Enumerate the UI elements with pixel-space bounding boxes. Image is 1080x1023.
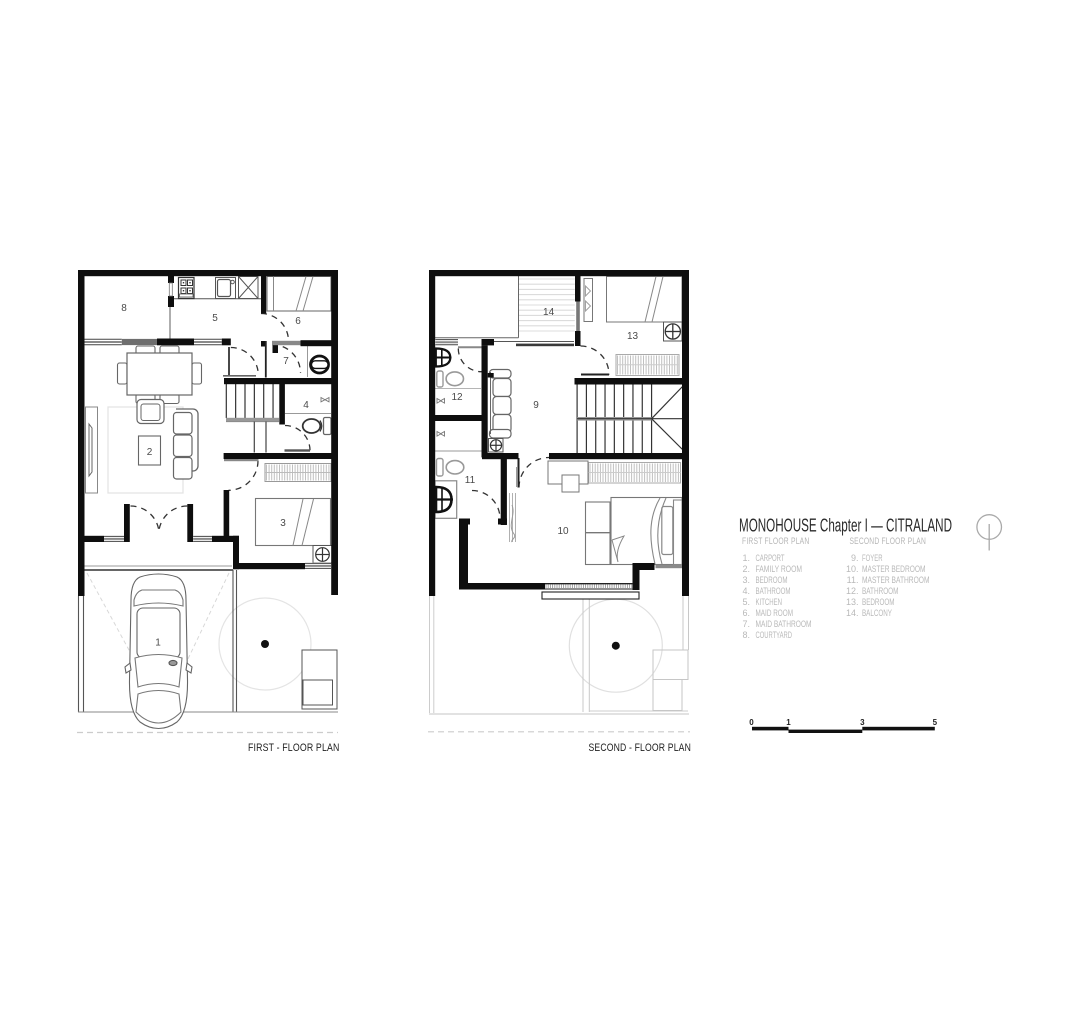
svg-text:11: 11 <box>465 475 476 486</box>
svg-text:6.: 6. <box>742 608 750 618</box>
svg-text:12: 12 <box>451 392 463 403</box>
svg-text:2.: 2. <box>742 564 750 574</box>
svg-text:8.: 8. <box>742 630 750 640</box>
svg-text:4.: 4. <box>742 586 750 596</box>
svg-text:MASTER BATHROOM: MASTER BATHROOM <box>862 575 930 585</box>
svg-text:5: 5 <box>212 313 218 324</box>
svg-text:3: 3 <box>280 518 286 529</box>
svg-text:COURTYARD: COURTYARD <box>756 630 793 640</box>
svg-text:9: 9 <box>533 400 539 411</box>
svg-text:MONOHOUSE Chapter I — CITRALAN: MONOHOUSE Chapter I — CITRALAND <box>739 516 952 536</box>
svg-text:5.: 5. <box>742 597 750 607</box>
svg-text:10: 10 <box>557 526 569 537</box>
svg-text:BEDROOM: BEDROOM <box>862 597 895 607</box>
svg-text:FAMILY ROOM: FAMILY ROOM <box>756 564 803 574</box>
svg-text:3.: 3. <box>742 575 750 585</box>
svg-text:MASTER BEDROOM: MASTER BEDROOM <box>862 564 926 574</box>
svg-text:10.: 10. <box>846 564 859 574</box>
svg-text:5: 5 <box>933 718 938 727</box>
svg-text:KITCHEN: KITCHEN <box>756 597 783 607</box>
svg-text:7: 7 <box>283 356 289 367</box>
svg-text:9.: 9. <box>851 553 859 563</box>
svg-text:13.: 13. <box>846 597 859 607</box>
svg-text:MAID ROOM: MAID ROOM <box>756 608 794 618</box>
svg-text:4: 4 <box>303 400 309 411</box>
svg-text:2: 2 <box>147 447 153 458</box>
svg-text:7.: 7. <box>742 619 750 629</box>
svg-text:3: 3 <box>860 718 865 727</box>
svg-text:MAID BATHROOM: MAID BATHROOM <box>756 619 812 629</box>
svg-text:SECOND FLOOR PLAN: SECOND FLOOR PLAN <box>850 536 927 546</box>
svg-text:FOYER: FOYER <box>862 553 883 563</box>
svg-text:CARPORT: CARPORT <box>756 553 785 563</box>
svg-text:1: 1 <box>786 718 791 727</box>
svg-text:SECOND - FLOOR PLAN: SECOND - FLOOR PLAN <box>589 742 692 754</box>
svg-text:11.: 11. <box>847 575 859 585</box>
svg-text:13: 13 <box>627 331 639 342</box>
svg-text:BATHROOM: BATHROOM <box>862 586 899 596</box>
svg-text:BALCONY: BALCONY <box>862 608 892 618</box>
svg-text:14.: 14. <box>846 608 859 618</box>
svg-text:6: 6 <box>295 316 301 327</box>
svg-text:12.: 12. <box>846 586 859 596</box>
svg-text:BEDROOM: BEDROOM <box>756 575 788 585</box>
svg-text:FIRST - FLOOR PLAN: FIRST - FLOOR PLAN <box>248 742 340 754</box>
svg-text:0: 0 <box>749 718 754 727</box>
svg-text:FIRST FLOOR PLAN: FIRST FLOOR PLAN <box>742 536 810 546</box>
svg-text:BATHROOM: BATHROOM <box>756 586 791 596</box>
svg-text:8: 8 <box>121 303 127 314</box>
svg-text:14: 14 <box>543 307 555 318</box>
svg-text:1: 1 <box>155 638 161 649</box>
svg-text:1.: 1. <box>742 553 750 563</box>
